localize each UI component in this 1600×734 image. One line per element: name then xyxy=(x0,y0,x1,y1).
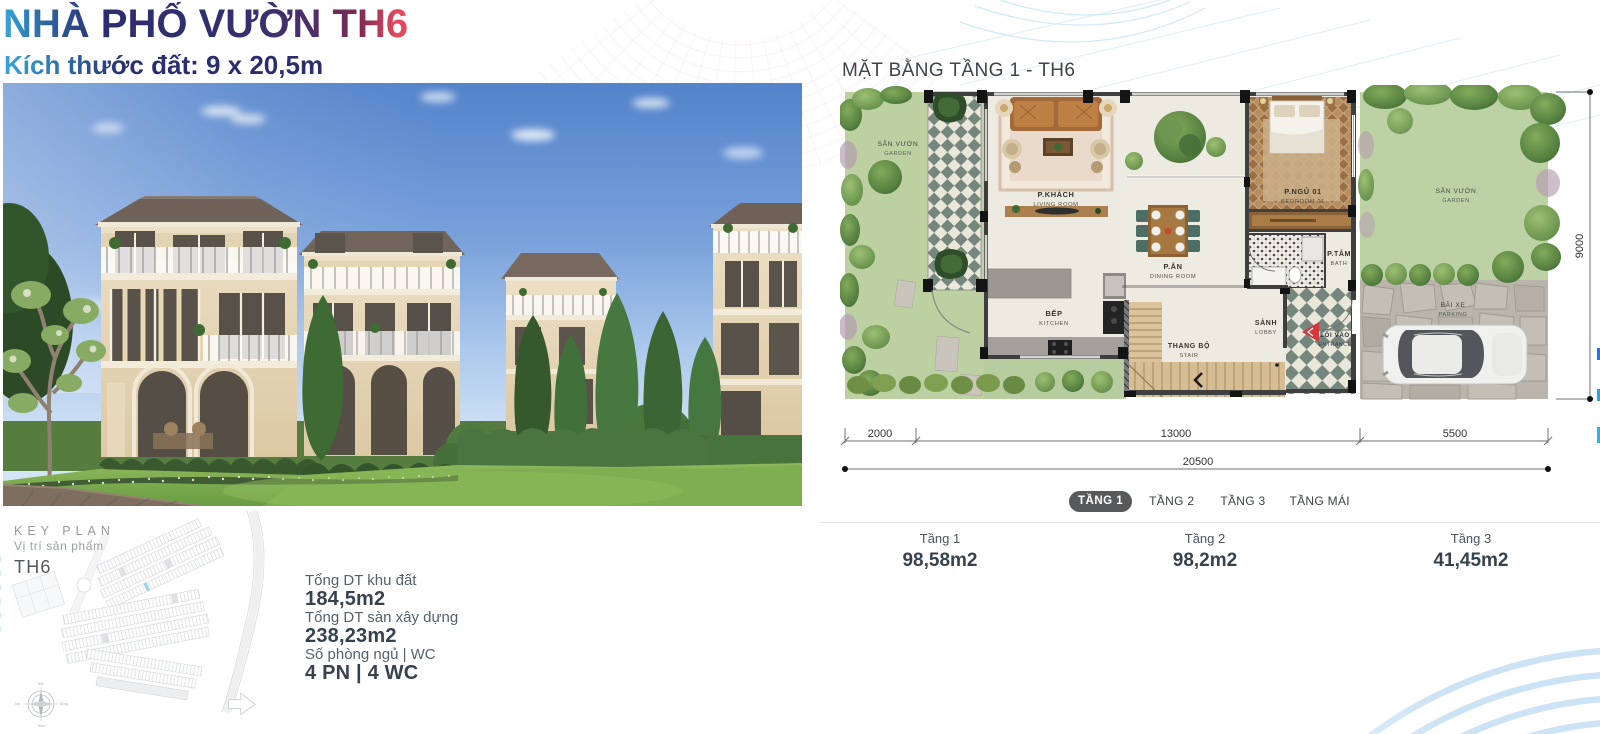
svg-text:P.TẮM: P.TẮM xyxy=(1327,249,1351,258)
svg-text:STAIR: STAIR xyxy=(1179,353,1198,359)
svg-text:SÂN VƯỜN: SÂN VƯỜN xyxy=(1436,186,1477,195)
svg-text:BẾP: BẾP xyxy=(1046,308,1063,318)
svg-text:P.ĂN: P.ĂN xyxy=(1163,262,1182,271)
svg-text:PARKING: PARKING xyxy=(1439,312,1468,318)
svg-text:5500: 5500 xyxy=(1443,428,1467,440)
svg-text:P.NGỦ 01: P.NGỦ 01 xyxy=(1284,187,1322,196)
svg-text:LIVING ROOM: LIVING ROOM xyxy=(1033,202,1078,208)
svg-text:Đông: Đông xyxy=(60,702,68,706)
svg-text:LOBBY: LOBBY xyxy=(1255,330,1277,336)
svg-text:ENTRANCE: ENTRANCE xyxy=(1318,342,1351,348)
svg-text:13000: 13000 xyxy=(1161,428,1192,440)
svg-text:P.KHÁCH: P.KHÁCH xyxy=(1038,190,1075,199)
svg-text:DINING ROOM: DINING ROOM xyxy=(1150,274,1197,280)
svg-text:KITCHEN: KITCHEN xyxy=(1039,321,1069,327)
svg-text:Tây: Tây xyxy=(14,702,20,706)
svg-text:LỐI VÀO: LỐI VÀO xyxy=(1320,332,1350,339)
svg-text:BATH: BATH xyxy=(1331,261,1348,267)
svg-text:Nam: Nam xyxy=(38,724,45,728)
svg-text:THANG BỘ: THANG BỘ xyxy=(1168,341,1210,350)
svg-text:GARDEN: GARDEN xyxy=(884,151,912,157)
svg-text:SÂN VƯỜN: SÂN VƯỜN xyxy=(878,139,919,148)
svg-text:20500: 20500 xyxy=(1183,456,1214,468)
svg-text:BÃI XE: BÃI XE xyxy=(1441,300,1466,309)
svg-text:Bắc: Bắc xyxy=(38,681,44,686)
svg-text:GARDEN: GARDEN xyxy=(1442,198,1470,204)
svg-text:2000: 2000 xyxy=(868,428,892,440)
svg-text:SẢNH: SẢNH xyxy=(1255,318,1277,327)
svg-text:9000: 9000 xyxy=(1574,234,1586,258)
svg-text:BEDROOM 01: BEDROOM 01 xyxy=(1281,199,1325,205)
